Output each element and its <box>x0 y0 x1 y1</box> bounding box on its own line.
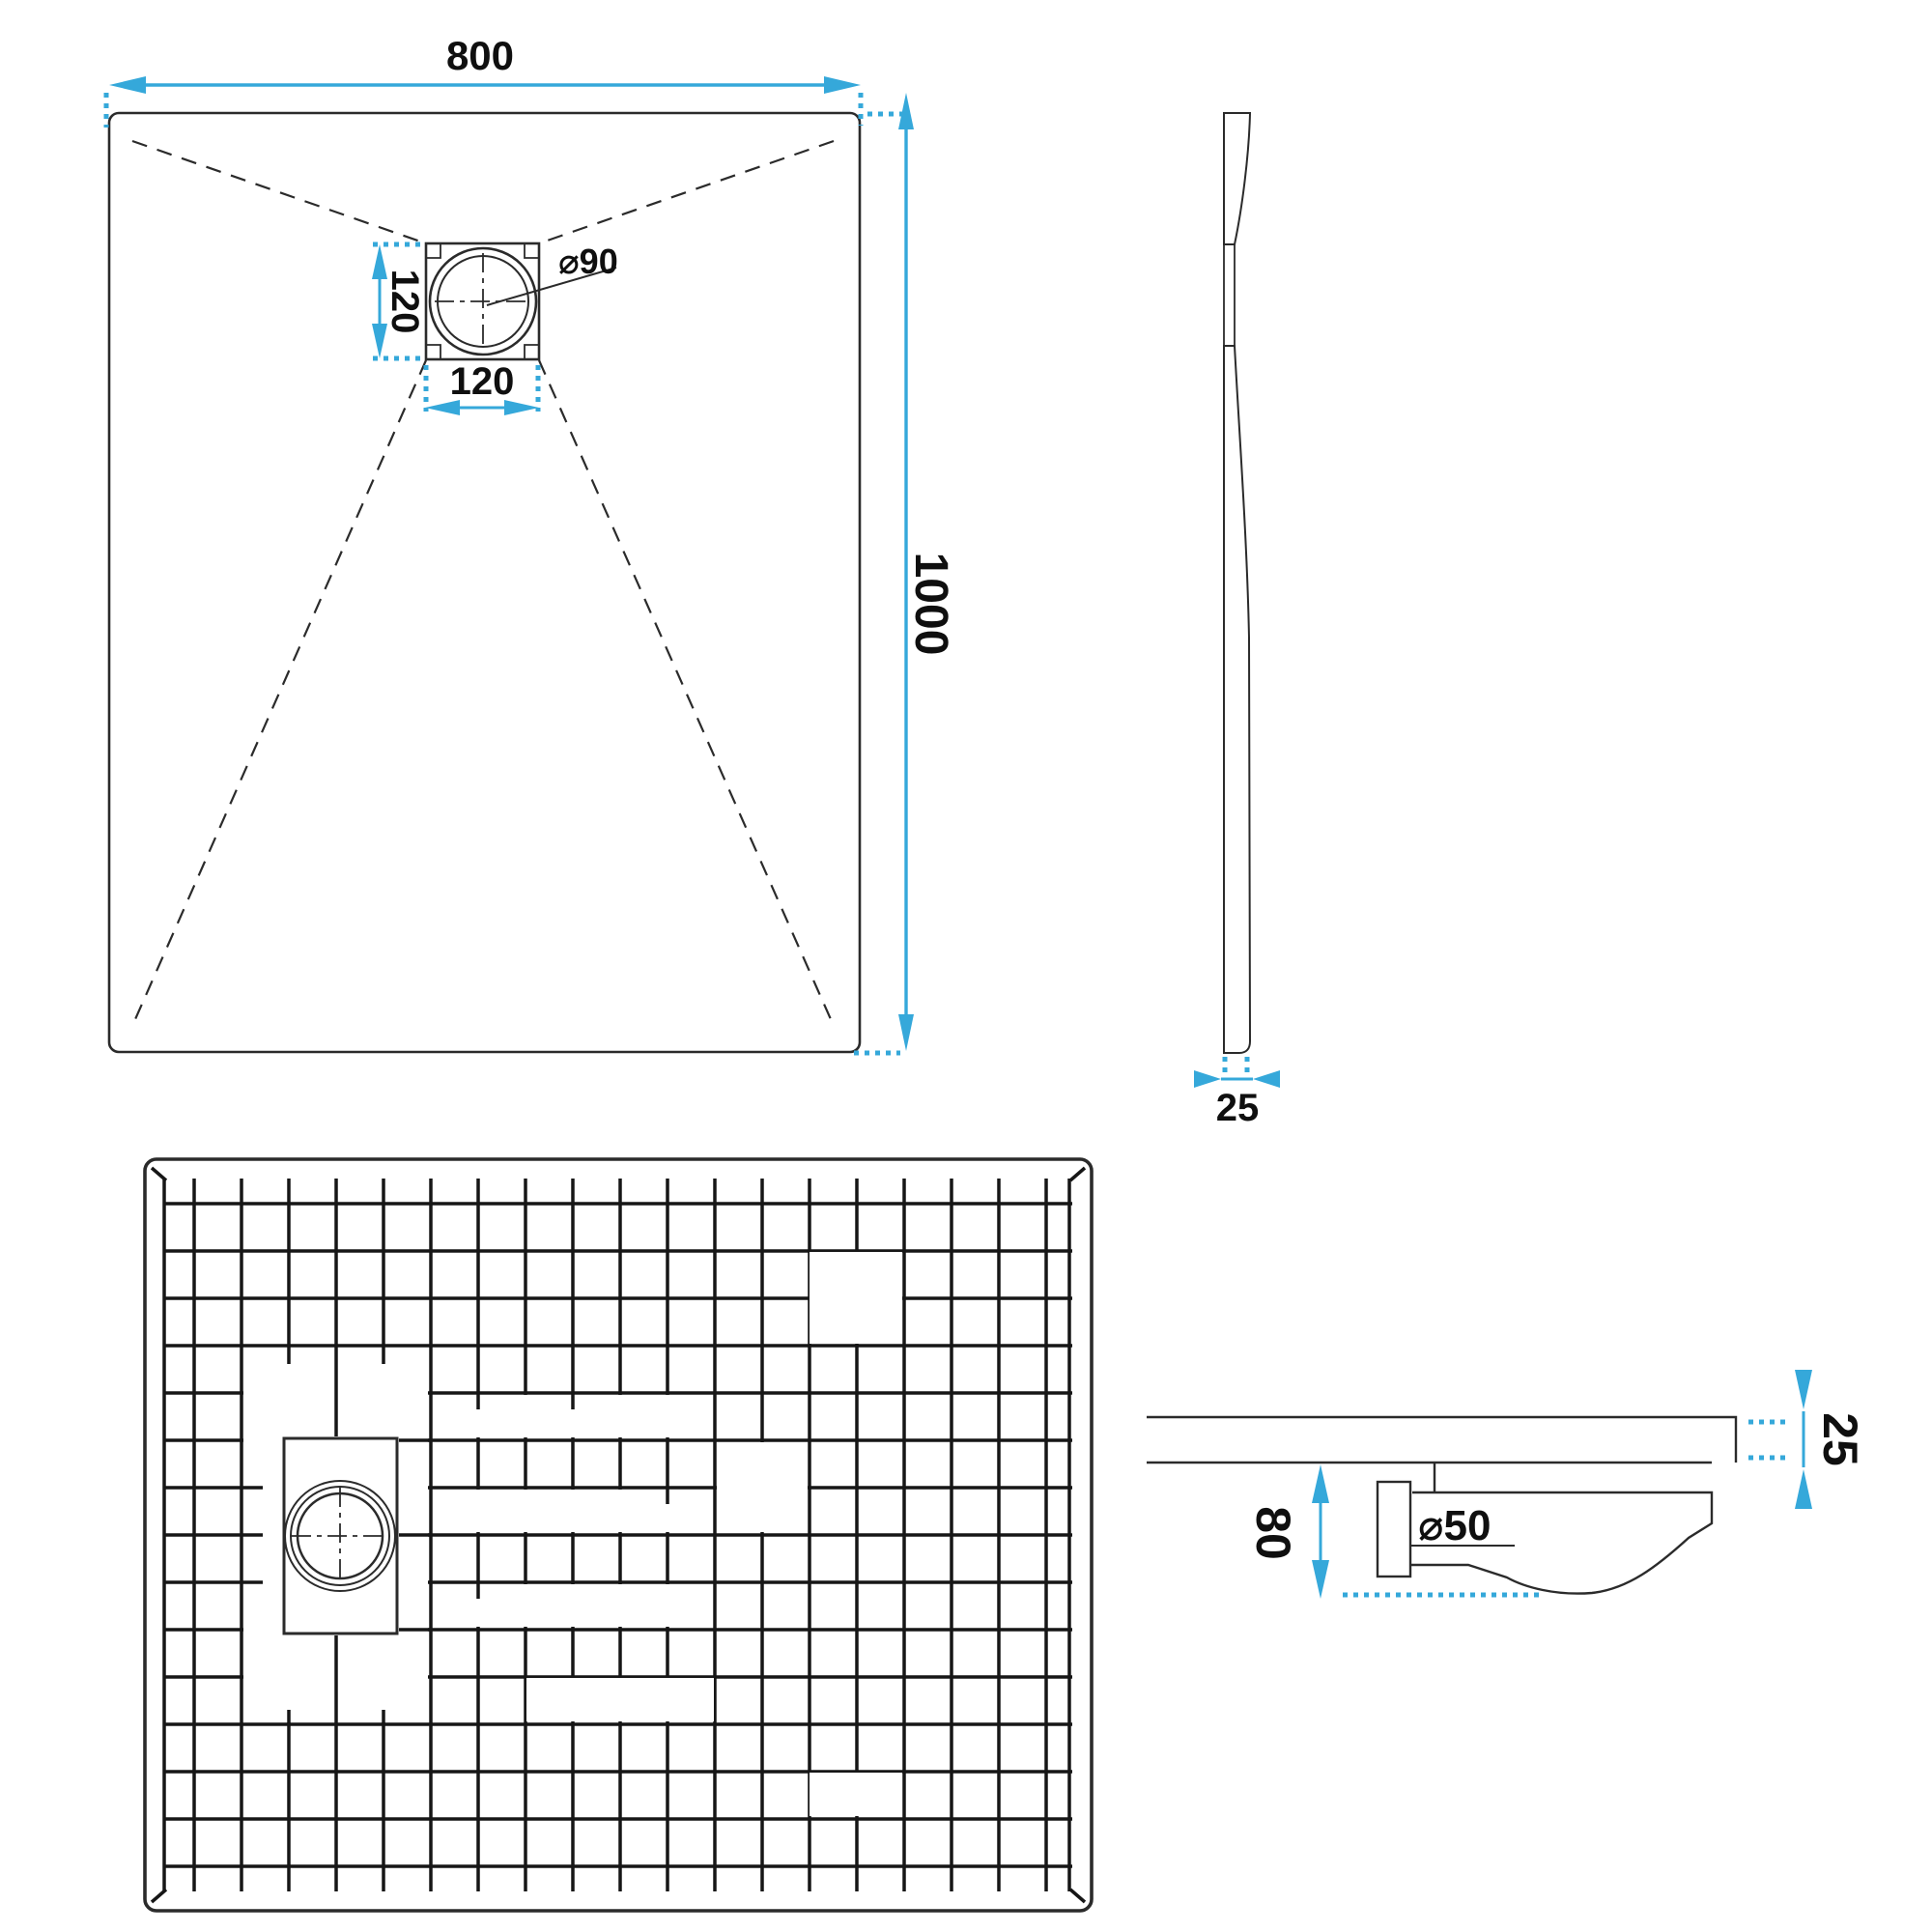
dim-length-label: 1000 <box>905 553 956 656</box>
texture-view <box>145 1159 1092 1911</box>
side-profile-drain-zone <box>1224 244 1235 346</box>
dim-drain-vertical-label: 120 <box>384 270 426 334</box>
dim-drain-vertical-120: 120 <box>372 244 426 358</box>
dim-drain-horizontal-label: 120 <box>450 360 515 403</box>
dim-width-label: 800 <box>446 33 514 78</box>
detail-flange <box>1378 1482 1410 1577</box>
dim-drain-height-label: 80 <box>1246 1506 1300 1560</box>
top-view: ⌀90 800 1000 120 <box>106 33 956 1053</box>
dim-side-thickness-label: 25 <box>1216 1087 1260 1129</box>
side-profile-bottom <box>1224 346 1250 1053</box>
dim-drain-height-80: 80 <box>1246 1464 1544 1599</box>
side-view: 25 <box>1194 113 1280 1129</box>
drain-diameter-label: ⌀90 <box>558 241 618 281</box>
technical-drawing: ⌀90 800 1000 120 <box>0 0 1932 1932</box>
dim-side-thickness-25: 25 <box>1194 1057 1280 1129</box>
detail-view: ⌀50 80 25 <box>1147 1370 1867 1599</box>
dim-detail-thickness-label: 25 <box>1813 1412 1867 1466</box>
dim-detail-thickness-25: 25 <box>1748 1370 1867 1509</box>
side-profile-top <box>1224 113 1250 244</box>
detail-pipe-diameter-label: ⌀50 <box>1418 1502 1491 1549</box>
detail-slab <box>1147 1417 1736 1463</box>
dim-length-1000: 1000 <box>854 93 956 1053</box>
dim-drain-horizontal-120: 120 <box>425 360 539 415</box>
